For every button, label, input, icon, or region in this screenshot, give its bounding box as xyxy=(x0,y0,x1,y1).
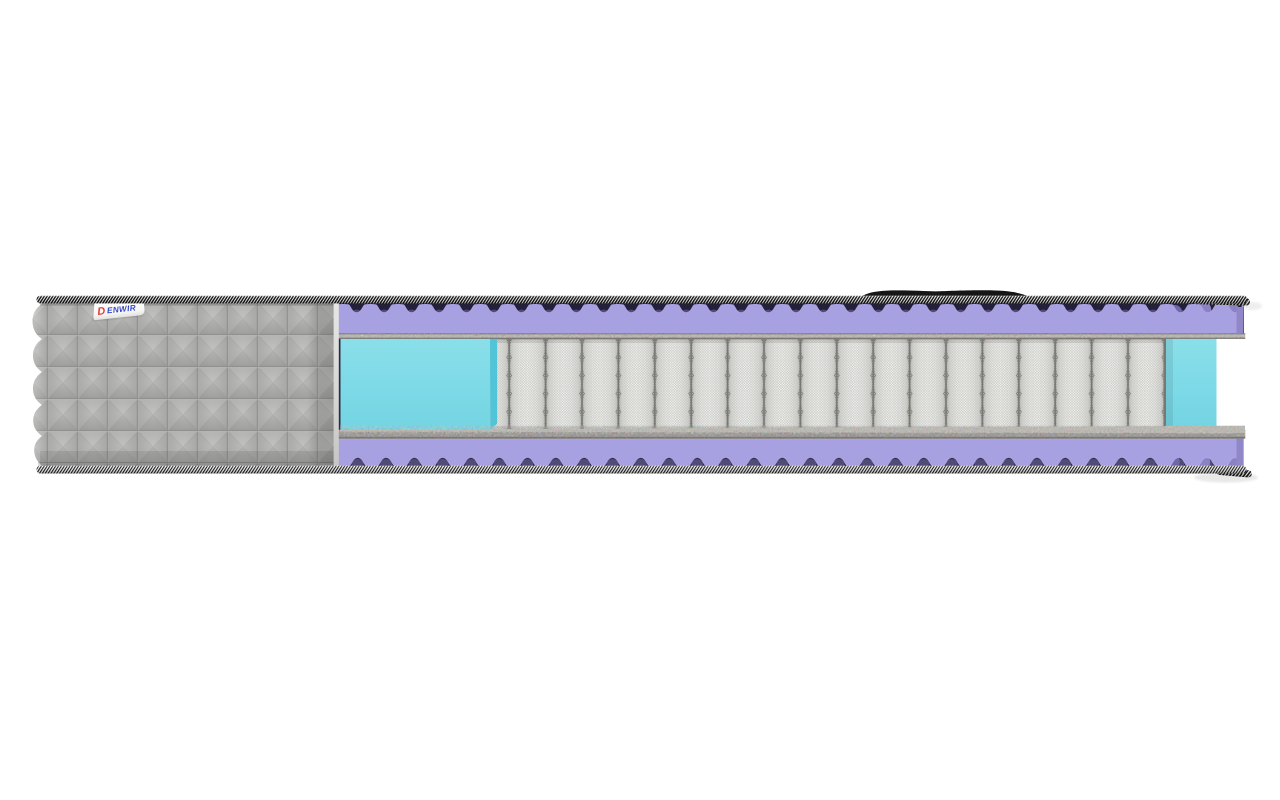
svg-text:D: D xyxy=(97,305,106,318)
